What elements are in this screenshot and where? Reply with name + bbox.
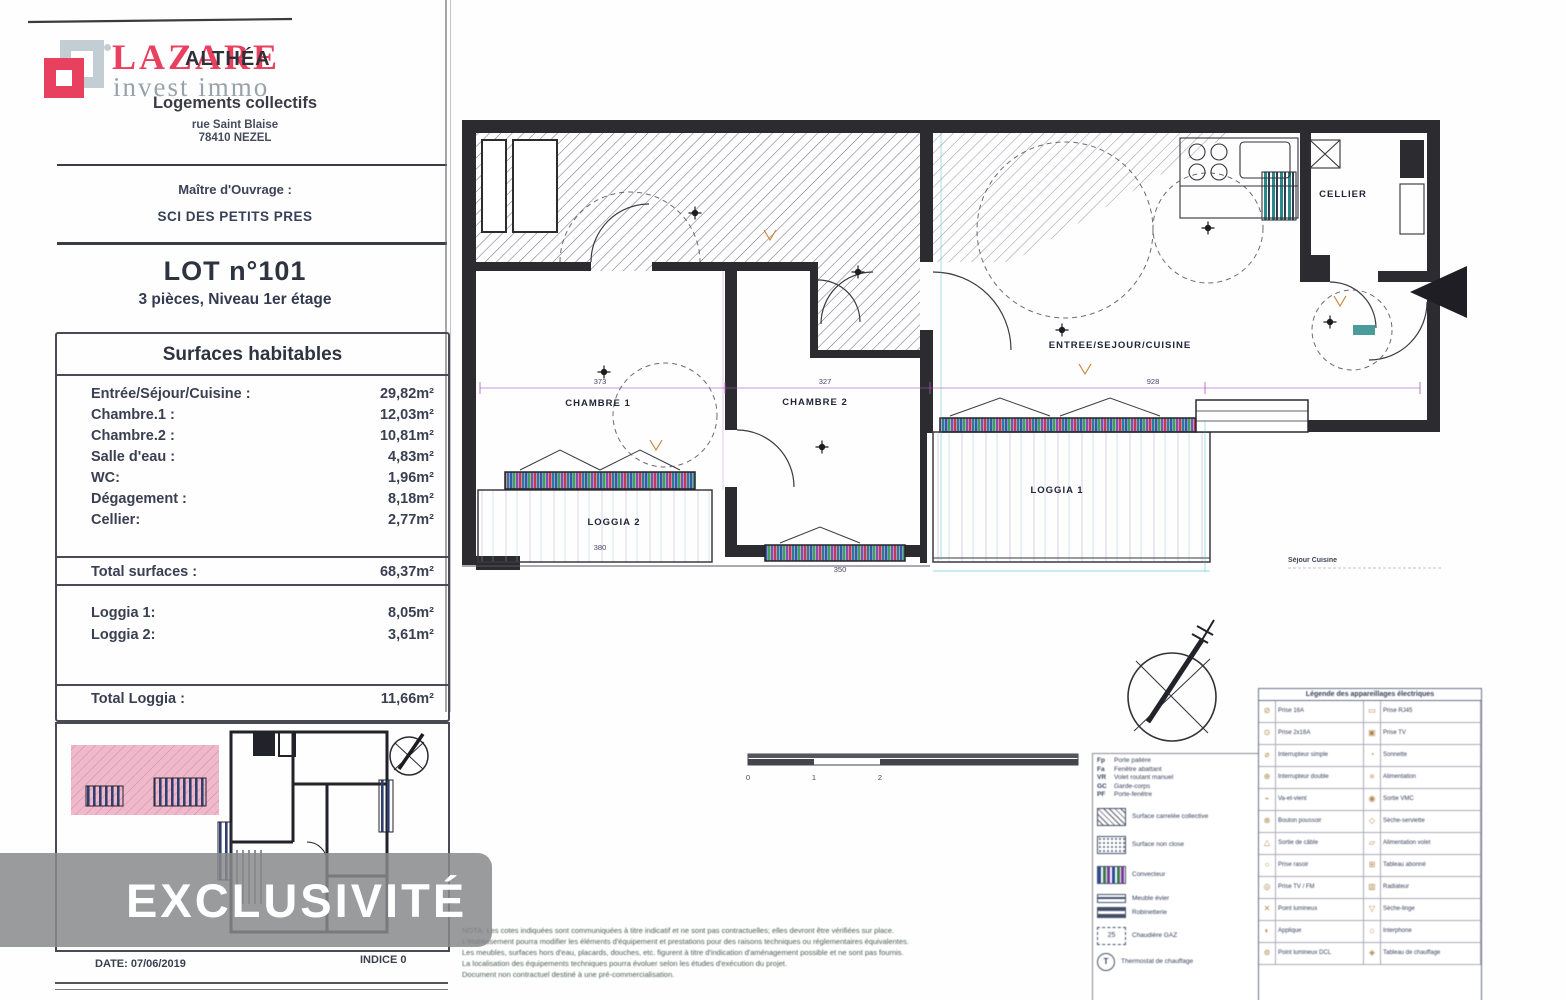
legend-electrical-grid: ⊘Prise 16A▭Prise RJ45 ⊙Prise 2x16A▣Prise… (1259, 701, 1481, 965)
total-surfaces-row: Total surfaces : 68,37m² (57, 564, 448, 580)
abbrev-key: GC (1097, 783, 1109, 792)
legend-cell: Interrupteur double (1276, 767, 1364, 789)
abbrev-label: Garde-corps (1114, 783, 1150, 792)
loggia-label: Loggia 1: (57, 605, 155, 621)
mini-window-1 (86, 786, 123, 806)
program-address1: rue Saint Blaise (30, 119, 440, 131)
legend-item: TThermostat de chauffage (1097, 953, 1261, 971)
dim-327: 327 (819, 377, 832, 386)
dim-380: 380 (594, 543, 607, 552)
legend-electrical: Légende des appareillages électriques ⊘P… (1258, 688, 1482, 1000)
symbol-icon: ◇ (1364, 811, 1381, 833)
legend-electrical-title: Légende des appareillages électriques (1259, 689, 1481, 701)
legend-item: Convecteur (1097, 866, 1261, 884)
legend-item-label: Robinetterie (1132, 909, 1167, 916)
surface-row: WC:1,96m² (57, 470, 448, 486)
tap-icon (1097, 907, 1126, 918)
legend-cell: Prise TV / FM (1276, 877, 1364, 899)
surface-label: Cellier: (57, 512, 140, 528)
program-address2: 78410 NEZEL (30, 132, 440, 144)
legend-abbrev: VRVolet roulant manuel (1097, 774, 1261, 783)
footer-rule (55, 982, 448, 990)
program-type: Logements collectifs (30, 94, 440, 113)
surface-value: 12,03m² (380, 407, 448, 423)
disclaimer-line: La localisation des équipements techniqu… (462, 958, 1087, 969)
duct-2 (513, 140, 557, 232)
scale-tick-0: 0 (746, 773, 750, 782)
legend-item: Surface non close (1097, 836, 1261, 854)
legend-item: 25Chaudière GAZ (1097, 927, 1261, 945)
abbrev-label: Porte-fenêtre (1114, 791, 1152, 800)
mini-window-2 (154, 778, 206, 806)
loggia-row: Loggia 2:3,61m² (57, 627, 448, 643)
loggia-value: 8,05m² (388, 605, 448, 621)
sink-unit-icon (1097, 894, 1126, 903)
disclaimer-line: NOTA: Les cotes indiquées sont communiqu… (462, 925, 1087, 936)
duct-1 (482, 140, 506, 232)
mini-core (253, 732, 275, 756)
legend-cell: Bouton poussoir (1276, 811, 1364, 833)
legend-cell: Sortie VMC (1381, 789, 1481, 811)
total-loggia-label: Total Loggia : (57, 691, 185, 707)
symbol-icon: ⊞ (1364, 855, 1381, 877)
dim-350: 350 (834, 565, 847, 574)
plan-note: Séjour Cuisine (1288, 557, 1337, 564)
surface-value: 10,81m² (380, 428, 448, 444)
legend-abbrev: FpPorte palière (1097, 757, 1261, 766)
surfaces-table: Surfaces habitables Entrée/Séjour/Cuisin… (55, 332, 450, 722)
scanned-floorplan-page: CHAMBRE 1 CHAMBRE 2 ENTREE/SEJOUR/CUISIN… (0, 0, 1566, 1000)
room-label-loggia2: LOGGIA 2 (587, 517, 640, 528)
room-label-sejour: ENTREE/SEJOUR/CUISINE (1049, 340, 1191, 351)
legend-item: Surface carrelée collective (1097, 808, 1261, 826)
surfaces-rule (57, 556, 448, 558)
legend-cell: Prise 2x16A (1276, 723, 1364, 745)
legend-cell: Interphone (1381, 921, 1481, 943)
legend-symbols: FpPorte palière FaFenêtre abattant VRVol… (1092, 753, 1266, 1000)
symbol-icon: ⊗ (1259, 811, 1276, 833)
surfaces-title-rule (57, 374, 448, 376)
scale-tick-2: 2 (878, 773, 882, 782)
legend-item: Robinetterie (1097, 907, 1261, 918)
window-sejour (940, 418, 1196, 432)
exclusivity-text: EXCLUSIVITÉ (0, 873, 467, 928)
abbrev-label: Porte palière (1114, 757, 1151, 766)
legend-item: Meuble évier (1097, 894, 1261, 903)
abbrev-key: Fp (1097, 757, 1109, 766)
symbol-icon: ⊚ (1259, 943, 1276, 965)
legend-item-label: Chaudière GAZ (1132, 932, 1177, 939)
window-chambre2 (765, 545, 905, 561)
thermostat-icon: T (1097, 953, 1115, 971)
legend-cell: Alimentation (1381, 767, 1481, 789)
symbol-icon: ≡ (1364, 767, 1381, 789)
dots-swatch-icon (1097, 836, 1126, 854)
legend-cell: Applique (1276, 921, 1364, 943)
surface-value: 2,77m² (388, 512, 448, 528)
program-name: ALTHÉA (185, 48, 271, 71)
boiler-icon: 25 (1097, 927, 1126, 945)
convector-swatch-icon (1097, 866, 1126, 884)
legend-cell: Point lumineux (1276, 899, 1364, 921)
disclaimer-text: NOTA: Les cotes indiquées sont communiqu… (462, 925, 1087, 980)
dim-373: 373 (594, 377, 607, 386)
surface-value: 29,82m² (380, 386, 448, 402)
surfaces-title: Surfaces habitables (57, 344, 448, 366)
compass-icon (1128, 620, 1216, 741)
surface-row: Cellier:2,77m² (57, 512, 448, 528)
symbol-icon: ▭ (1364, 701, 1381, 723)
symbol-icon: ▱ (1364, 833, 1381, 855)
surface-label: Dégagement : (57, 491, 187, 507)
legend-abbrev: GCGarde-corps (1097, 783, 1261, 792)
total-loggia-row: Total Loggia : 11,66m² (57, 691, 448, 707)
surface-row: Chambre.1 :12,03m² (57, 407, 448, 423)
loggia1-floor (933, 432, 1210, 562)
surface-row: Dégagement :8,18m² (57, 491, 448, 507)
disclaimer-line: L'établissement pourra modifier les élém… (462, 936, 1087, 947)
surfaces-rule (57, 684, 448, 686)
symbol-icon: ⊕ (1259, 767, 1276, 789)
symbol-icon: ⌁ (1259, 789, 1276, 811)
surface-value: 1,96m² (388, 470, 448, 486)
scale-bar: 0 1 2 (746, 754, 1078, 782)
surface-row: Salle d'eau :4,83m² (57, 449, 448, 465)
symbol-icon: ◎ (1259, 877, 1276, 899)
room-label-chambre2: CHAMBRE 2 (782, 397, 847, 408)
legend-cell: Sonnette (1381, 745, 1481, 767)
legend-cell: Tableau de chauffage (1381, 943, 1481, 965)
mini-window-4 (379, 780, 393, 832)
legend-abbrev: PFPorte-fenêtre (1097, 791, 1261, 800)
door-fenetre (1196, 400, 1308, 432)
symbol-icon: ⊘ (1259, 701, 1276, 723)
abbrev-key: VR (1097, 774, 1109, 783)
loggia-value: 3,61m² (388, 627, 448, 643)
plan-indice: INDICE 0 (360, 954, 406, 966)
legend-item-label: Surface non close (1132, 841, 1184, 848)
surface-value: 8,18m² (388, 491, 448, 507)
symbol-icon: ▽ (1364, 899, 1381, 921)
surface-row: Chambre.2 :10,81m² (57, 428, 448, 444)
legend-item-label: Thermostat de chauffage (1121, 958, 1193, 965)
abbrev-label: Fenêtre abattant (1114, 766, 1162, 775)
legend-cell: Prise rasoir (1276, 855, 1364, 877)
legend-cell: Sèche-serviette (1381, 811, 1481, 833)
surface-value: 4,83m² (388, 449, 448, 465)
plan-date: DATE: 07/06/2019 (95, 958, 186, 970)
legend-abbrev: FaFenêtre abattant (1097, 766, 1261, 775)
surface-label: Entrée/Séjour/Cuisine : (57, 386, 251, 402)
legend-cell: Sortie de câble (1276, 833, 1364, 855)
symbol-icon: ✕ (1259, 899, 1276, 921)
symbol-icon: ◐ (1259, 921, 1276, 943)
legend-cell: Prise RJ45 (1381, 701, 1481, 723)
hatch-swatch-icon (1097, 808, 1126, 826)
abbrev-key: PF (1097, 791, 1109, 800)
surfaces-rule (57, 584, 448, 586)
legend-cell: Tableau abonné (1381, 855, 1481, 877)
legend-cell: Point lumineux DCL (1276, 943, 1364, 965)
mini-compass-icon (390, 734, 428, 775)
window-chambre1 (505, 472, 695, 489)
program-block: Logements collectifs rue Saint Blaise 78… (30, 94, 440, 144)
legend-item-label: Meuble évier (1132, 895, 1169, 902)
room-label-loggia1: LOGGIA 1 (1030, 485, 1083, 496)
legend-item-label: Convecteur (1132, 871, 1165, 878)
abbrev-label: Volet roulant manuel (1114, 774, 1173, 783)
legend-item-label: Surface carrelée collective (1132, 813, 1208, 820)
symbol-icon: ▣ (1364, 723, 1381, 745)
legend-cell: Interrupteur simple (1276, 745, 1364, 767)
top-rule (28, 19, 292, 22)
scale-tick-1: 1 (812, 773, 816, 782)
legend-cell: Radiateur (1381, 877, 1481, 899)
logo-red-square (44, 58, 84, 98)
surface-label: Chambre.1 : (57, 407, 175, 423)
legend-cell: Va-et-vient (1276, 789, 1364, 811)
symbol-icon: ◉ (1364, 789, 1381, 811)
disclaimer-line: Document non contractuel destiné à une p… (462, 969, 1087, 980)
room-label-chambre1: CHAMBRE 1 (565, 398, 630, 409)
surface-label: Salle d'eau : (57, 449, 175, 465)
symbol-icon: ◈ (1364, 943, 1381, 965)
abbrev-key: Fa (1097, 766, 1109, 775)
symbol-icon: ◔ (1364, 745, 1381, 767)
surface-label: Chambre.2 : (57, 428, 175, 444)
legend-cell: Alimentation volet (1381, 833, 1481, 855)
symbol-icon: △ (1259, 833, 1276, 855)
total-surfaces-label: Total surfaces : (57, 564, 197, 580)
legend-cell: Prise 16A (1276, 701, 1364, 723)
symbol-icon: ⊙ (1259, 723, 1276, 745)
exclusivity-banner: EXCLUSIVITÉ (0, 853, 492, 947)
surface-row: Entrée/Séjour/Cuisine :29,82m² (57, 386, 448, 402)
legend-cell: Sèche-linge (1381, 899, 1481, 921)
symbol-icon: ▥ (1364, 877, 1381, 899)
loggia-row: Loggia 1:8,05m² (57, 605, 448, 621)
legend-cell: Prise TV (1381, 723, 1481, 745)
loggia-label: Loggia 2: (57, 627, 155, 643)
total-loggia-value: 11,66m² (381, 691, 448, 707)
surface-label: WC: (57, 470, 120, 486)
water-heater (1262, 172, 1296, 220)
disclaimer-line: Les meubles, surfaces hors d'eau, placar… (462, 947, 1087, 958)
total-surfaces-value: 68,37m² (380, 564, 448, 580)
dim-928: 928 (1147, 377, 1160, 386)
symbol-icon: ⌀ (1259, 745, 1276, 767)
symbol-icon: ⌂ (1364, 921, 1381, 943)
room-label-cellier: CELLIER (1319, 189, 1367, 200)
symbol-icon: ○ (1259, 855, 1276, 877)
